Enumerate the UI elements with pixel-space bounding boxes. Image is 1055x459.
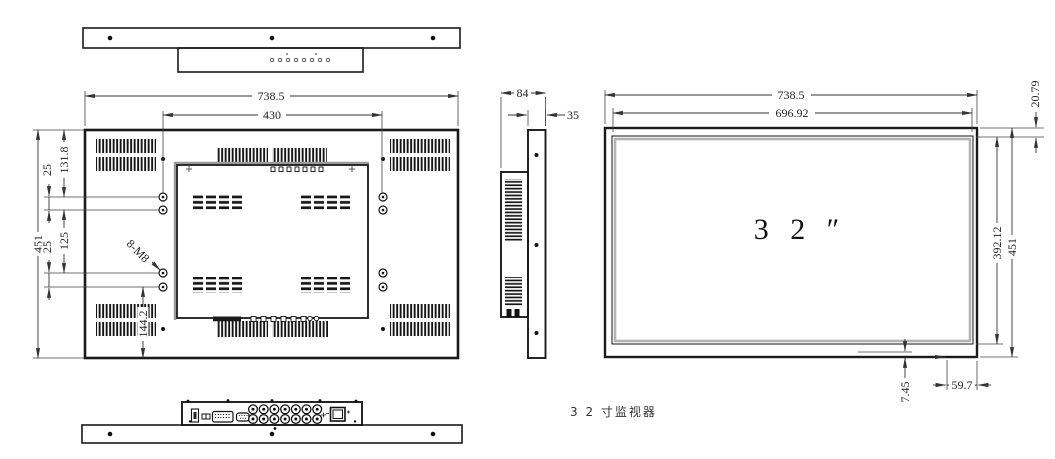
front-view: 3 2 ″ 738.5 696.92 20.79 392.12 451 <box>605 77 1044 406</box>
side-bottom-stubs <box>507 309 520 317</box>
usb-port <box>192 409 199 422</box>
power-inlet <box>321 408 350 422</box>
top-view <box>83 28 460 72</box>
dim-display-height: 392.12 <box>990 227 1004 260</box>
side-vent-upper <box>505 179 522 241</box>
side-dimensions: 84 35 <box>501 86 579 168</box>
vga-port <box>237 413 250 421</box>
dim-top-margin: 20.79 <box>1028 81 1042 108</box>
dim-hole-pitch-top: 25 <box>40 164 54 176</box>
dim-front-overall-width: 738.5 <box>778 88 805 102</box>
bottom-view <box>82 399 462 443</box>
engineering-drawing-32in-monitor: 738.5 430 451 131.8 25 125 25 144.2 8-M8 <box>0 0 1055 459</box>
side-view-screws <box>535 153 539 335</box>
bottom-view-screws <box>108 432 436 437</box>
dvi-port <box>213 412 234 423</box>
rear-vent-grilles <box>96 139 450 337</box>
dim-hole-pitch-bottom: 25 <box>40 241 54 253</box>
side-view: 84 35 <box>501 86 579 358</box>
dim-display-width: 696.92 <box>776 106 809 120</box>
screen-size-label: 3 2 ″ <box>754 213 847 246</box>
dim-holes-to-bottom: 144.2 <box>136 311 150 338</box>
panel-bottom-ports <box>213 316 319 321</box>
dim-corner-offset: 59.7 <box>952 378 973 392</box>
rear-rivets <box>161 157 385 331</box>
dim-rear-overall-width: 738.5 <box>258 89 285 103</box>
drawing-caption: 3 2 寸监视器 <box>570 404 657 419</box>
dim-bottom-inset: 7.45 <box>898 382 912 403</box>
dim-panel-depth: 35 <box>567 108 579 122</box>
dim-vesa-width: 430 <box>263 108 281 122</box>
dim-top-edge-to-holes: 131.8 <box>57 147 71 174</box>
panel-shadow <box>175 163 369 320</box>
drawing-canvas: 738.5 430 451 131.8 25 125 25 144.2 8-M8 <box>0 0 1055 459</box>
rear-electronics-panel <box>175 163 369 322</box>
panel-vent-clusters <box>193 194 350 293</box>
bnc-connectors <box>249 405 322 424</box>
dim-front-overall-height: 451 <box>1005 238 1019 256</box>
switch-port <box>202 414 210 419</box>
top-view-connector-dots <box>270 53 329 62</box>
top-view-screws <box>108 36 436 41</box>
side-vent-lower <box>505 277 522 306</box>
dim-overall-depth: 84 <box>517 86 529 100</box>
panel-top-ports <box>271 167 323 172</box>
rear-view: 738.5 430 451 131.8 25 125 25 144.2 8-M8 <box>31 89 458 358</box>
thread-callout-8-m8: 8-M8 <box>124 237 153 266</box>
dim-vesa-height: 125 <box>57 232 71 250</box>
